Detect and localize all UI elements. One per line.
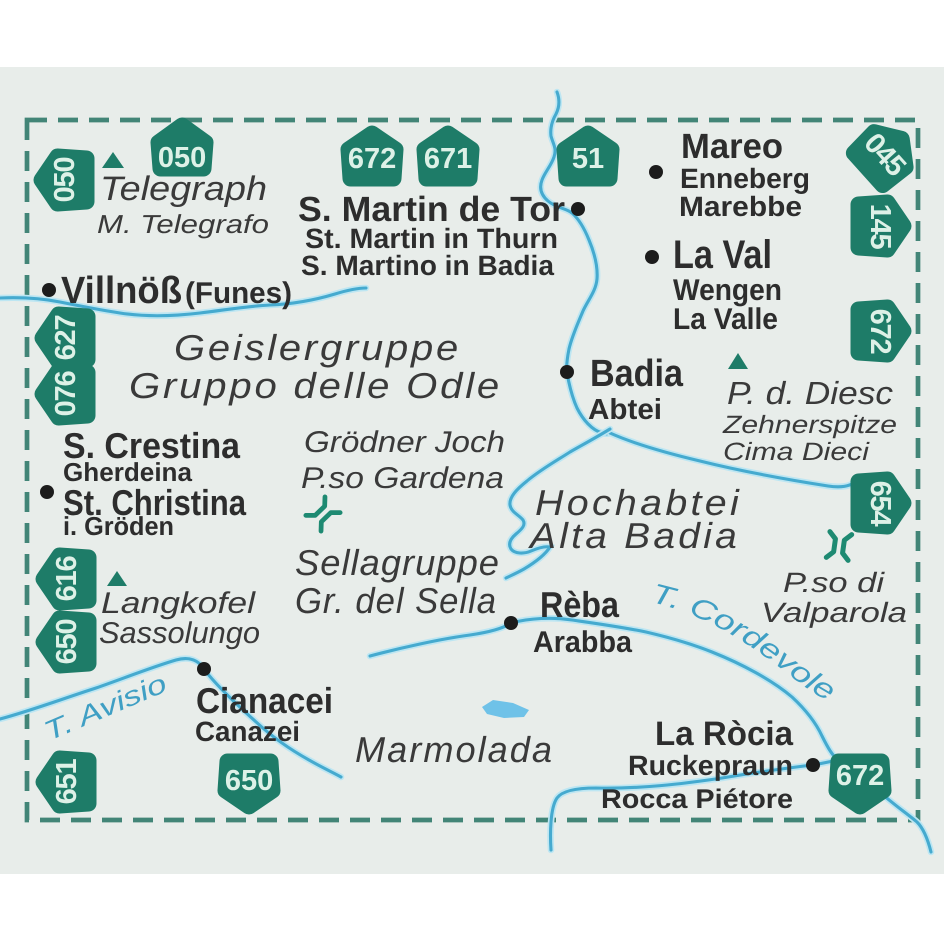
svg-text:Gr. del Sella: Gr. del Sella bbox=[295, 580, 497, 621]
svg-text:P.so di: P.so di bbox=[783, 567, 885, 598]
svg-text:Valparola: Valparola bbox=[761, 597, 907, 628]
svg-text:Villnöß: Villnöß bbox=[61, 270, 182, 312]
svg-text:51: 51 bbox=[572, 143, 604, 175]
svg-text:Telegraph: Telegraph bbox=[100, 170, 267, 208]
svg-text:La Ròcia: La Ròcia bbox=[655, 715, 794, 753]
svg-text:Sassolungo: Sassolungo bbox=[99, 617, 260, 650]
svg-text:672: 672 bbox=[836, 760, 884, 792]
svg-text:Rèba: Rèba bbox=[540, 584, 620, 625]
svg-text:S. Martino in Badia: S. Martino in Badia bbox=[301, 250, 554, 281]
svg-text:Arabba: Arabba bbox=[533, 626, 632, 659]
svg-text:Zehnerspitze: Zehnerspitze bbox=[722, 411, 897, 439]
svg-text:076: 076 bbox=[50, 371, 82, 417]
svg-text:Mareo: Mareo bbox=[681, 127, 783, 166]
svg-text:Badia: Badia bbox=[590, 353, 684, 395]
svg-text:i. Gröden: i. Gröden bbox=[63, 511, 174, 541]
svg-text:Ruckepraun: Ruckepraun bbox=[628, 750, 793, 781]
svg-text:Marebbe: Marebbe bbox=[679, 191, 802, 222]
svg-text:672: 672 bbox=[348, 143, 396, 175]
svg-text:La Valle: La Valle bbox=[673, 303, 778, 336]
svg-text:Geislergruppe: Geislergruppe bbox=[174, 327, 461, 368]
svg-text:Enneberg: Enneberg bbox=[680, 163, 810, 194]
svg-text:P. d. Diesc: P. d. Diesc bbox=[727, 375, 893, 411]
svg-text:Grödner Joch: Grödner Joch bbox=[304, 426, 505, 459]
svg-text:616: 616 bbox=[51, 556, 83, 602]
svg-text:050: 050 bbox=[49, 158, 81, 203]
svg-text:Cianacei: Cianacei bbox=[196, 680, 333, 721]
svg-text:Alta Badia: Alta Badia bbox=[528, 515, 740, 556]
svg-text:Gruppo delle Odle: Gruppo delle Odle bbox=[129, 365, 502, 406]
svg-text:La Val: La Val bbox=[673, 233, 772, 277]
svg-text:654: 654 bbox=[864, 481, 896, 527]
svg-text:650: 650 bbox=[51, 620, 83, 665]
svg-text:Rocca Piétore: Rocca Piétore bbox=[601, 784, 793, 814]
svg-text:Abtei: Abtei bbox=[588, 394, 662, 426]
svg-text:P.so Gardena: P.so Gardena bbox=[301, 462, 504, 495]
svg-text:671: 671 bbox=[424, 143, 472, 175]
svg-text:672: 672 bbox=[864, 309, 896, 354]
svg-text:650: 650 bbox=[225, 765, 273, 797]
svg-text:M. Telegrafo: M. Telegrafo bbox=[97, 209, 269, 239]
svg-text:Marmolada: Marmolada bbox=[355, 729, 554, 770]
svg-text:145: 145 bbox=[864, 204, 896, 250]
svg-text:(Funes): (Funes) bbox=[185, 277, 292, 310]
svg-text:627: 627 bbox=[50, 316, 82, 361]
svg-text:Cima Dieci: Cima Dieci bbox=[723, 438, 871, 466]
svg-text:Sellagruppe: Sellagruppe bbox=[295, 542, 500, 583]
svg-text:Canazei: Canazei bbox=[195, 716, 300, 747]
svg-text:651: 651 bbox=[51, 759, 83, 805]
svg-text:Langkofel: Langkofel bbox=[101, 587, 257, 620]
